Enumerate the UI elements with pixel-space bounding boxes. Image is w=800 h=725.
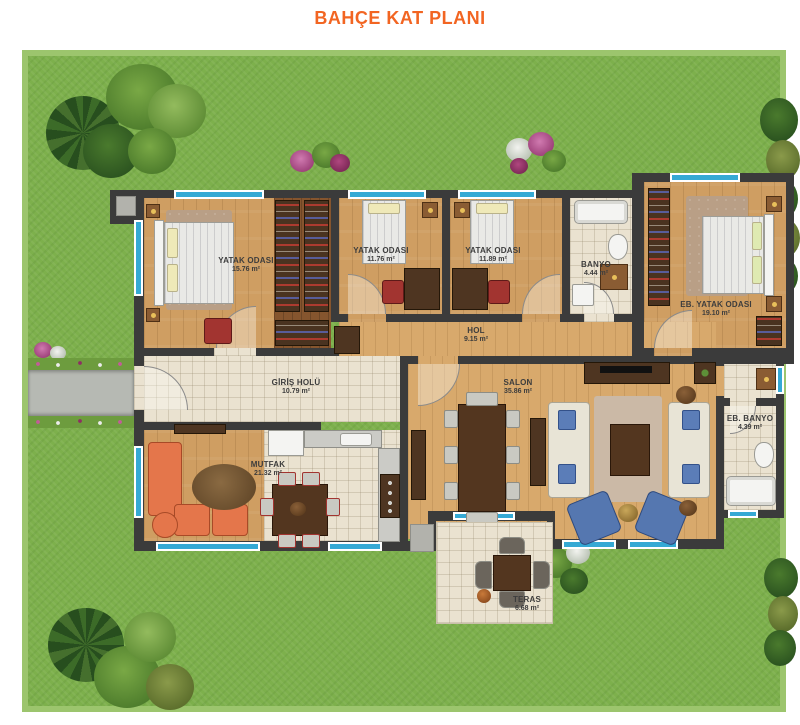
pouf-salon-bottom bbox=[679, 500, 697, 516]
window-br3-top bbox=[458, 190, 536, 199]
kitchen-chair-5 bbox=[260, 498, 274, 516]
page-title: BAHÇE KAT PLANI bbox=[0, 8, 800, 29]
dining-chair-6 bbox=[506, 482, 520, 500]
wardrobe-master-corner bbox=[756, 316, 782, 346]
nightstand-br3 bbox=[454, 202, 470, 218]
house: YATAK ODASI 15.76 m² YATAK ODASI 11.76 m… bbox=[28, 56, 792, 718]
window-br1-left bbox=[134, 220, 143, 296]
wall-right-master bbox=[786, 173, 794, 364]
room-label-banyo: BANYO 4.44 m² bbox=[566, 260, 626, 279]
nightstand-master-1 bbox=[766, 196, 782, 212]
window-mutfak-bottom-1 bbox=[156, 542, 260, 551]
room-label-teras: TERAS 6.68 m² bbox=[499, 595, 555, 614]
pillow-master-2 bbox=[752, 256, 762, 284]
terrace-chair-right bbox=[533, 561, 550, 589]
fruit-bowl bbox=[290, 502, 306, 516]
stove bbox=[380, 474, 400, 518]
floor-plan-page: BAHÇE KAT PLANI bbox=[0, 0, 800, 725]
dining-chair-3 bbox=[444, 482, 458, 500]
gap-br3-door bbox=[522, 314, 560, 322]
wall-ebbanyo-door-b bbox=[756, 398, 776, 406]
desk-br3 bbox=[452, 268, 488, 310]
gap-salon-door bbox=[418, 356, 458, 364]
pillow-br3 bbox=[476, 203, 508, 214]
side-table-orange bbox=[152, 512, 178, 538]
window-mutfak-bottom-2 bbox=[328, 542, 382, 551]
window-mutfak-left bbox=[134, 446, 143, 518]
terrace-plant-pot bbox=[477, 589, 491, 603]
pillow-master-1 bbox=[752, 222, 762, 250]
fridge bbox=[268, 430, 304, 456]
dining-chair-1 bbox=[444, 410, 458, 428]
armchair-br1 bbox=[204, 318, 232, 344]
wardrobe-corridor-2 bbox=[304, 200, 329, 312]
pillow-br1-1 bbox=[167, 228, 178, 258]
dining-chair-2 bbox=[444, 446, 458, 464]
wall-banyo-master bbox=[632, 173, 644, 356]
bathtub-banyo bbox=[574, 200, 628, 224]
tv-panel-mutfak bbox=[174, 424, 226, 434]
window-br2-top bbox=[348, 190, 426, 199]
wardrobe-corridor-low bbox=[275, 320, 329, 346]
dining-chair-5 bbox=[506, 446, 520, 464]
bed-master-headboard bbox=[764, 214, 774, 296]
boiler-cabinet-hol bbox=[334, 326, 360, 354]
window-master-top bbox=[670, 173, 740, 182]
wardrobe-master-left bbox=[648, 188, 670, 306]
kitchen-chair-6 bbox=[326, 498, 340, 516]
round-table-gold bbox=[618, 504, 638, 522]
dining-chair-4 bbox=[506, 410, 520, 428]
desk-br2 bbox=[404, 268, 440, 310]
gap-master-door bbox=[654, 348, 692, 356]
nightstand-br1-2 bbox=[146, 308, 160, 322]
console-salon-left bbox=[411, 430, 426, 500]
window-ebbanyo-bottom bbox=[728, 510, 758, 518]
wall-giris-salon bbox=[400, 356, 408, 551]
toilet-eb-banyo bbox=[754, 442, 774, 468]
terrace-table bbox=[493, 555, 531, 591]
gap-banyo-door bbox=[584, 314, 614, 322]
nightstand-master-2 bbox=[766, 296, 782, 312]
coffee-table-salon bbox=[610, 424, 650, 476]
cushion-left-2 bbox=[558, 464, 576, 484]
wall-br3-banyo bbox=[562, 190, 570, 322]
utility-shaft bbox=[116, 196, 136, 216]
cushion-right-1 bbox=[682, 410, 700, 430]
console-salon-mid bbox=[530, 418, 546, 486]
nightstand-br2 bbox=[422, 202, 438, 218]
terrace-chair-top bbox=[499, 537, 525, 554]
toilet-banyo bbox=[608, 234, 628, 260]
nightstand-br1-1 bbox=[146, 204, 160, 218]
pillow-br2 bbox=[368, 203, 400, 214]
bed-br1-headboard bbox=[154, 220, 164, 306]
room-label-yatak-odasi-2: YATAK ODASI 11.76 m² bbox=[336, 246, 426, 265]
kitchen-chair-4 bbox=[302, 534, 320, 548]
bathtub-eb-banyo bbox=[726, 476, 776, 506]
room-label-eb-yatak-odasi: EB. YATAK ODASI 19.10 m² bbox=[666, 300, 766, 319]
kitchen-sink bbox=[340, 433, 372, 446]
room-label-yatak-odasi-1: YATAK ODASI 15.76 m² bbox=[201, 256, 291, 275]
washing-machine-banyo bbox=[572, 284, 594, 306]
window-nook-right bbox=[776, 366, 784, 394]
dining-table-salon bbox=[458, 404, 506, 512]
window-br1-top bbox=[174, 190, 264, 199]
cushion-right-2 bbox=[682, 464, 700, 484]
terrace: TERAS 6.68 m² bbox=[436, 522, 553, 624]
room-label-salon: SALON 35.86 m² bbox=[473, 378, 563, 397]
sink-cabinet-eb-banyo bbox=[756, 368, 776, 390]
kitchen-chair-3 bbox=[278, 534, 296, 548]
cushion-left-1 bbox=[558, 410, 576, 430]
room-label-yatak-odasi-3: YATAK ODASI 11.89 m² bbox=[448, 246, 538, 265]
desk-chair-br3 bbox=[488, 280, 510, 304]
terrace-chair-left bbox=[475, 561, 492, 589]
terrace-step bbox=[410, 524, 434, 552]
room-label-mutfak: MUTFAK 21.32 m² bbox=[223, 460, 313, 479]
gap-br2-door bbox=[348, 314, 386, 322]
room-label-eb-banyo: EB. BANYO 4.39 m² bbox=[714, 414, 786, 433]
pouf-salon-top bbox=[676, 386, 696, 404]
room-label-hol: HOL 9.15 m² bbox=[446, 326, 506, 345]
pillow-br1-2 bbox=[167, 264, 178, 292]
gap-entrance bbox=[134, 366, 144, 410]
armchair-orange-1 bbox=[174, 504, 210, 536]
garden: YATAK ODASI 15.76 m² YATAK ODASI 11.76 m… bbox=[22, 50, 786, 712]
wall-ebbanyo-door-a bbox=[724, 398, 730, 406]
tv-salon bbox=[600, 366, 652, 373]
gap-nook bbox=[716, 366, 724, 396]
room-label-giris-holu: GİRİŞ HOLÜ 10.79 m² bbox=[251, 378, 341, 397]
gap-br1-door bbox=[214, 348, 256, 356]
wall-kitchen-top bbox=[134, 422, 321, 430]
desk-chair-br2 bbox=[382, 280, 404, 304]
plant-box-salon bbox=[694, 362, 716, 384]
